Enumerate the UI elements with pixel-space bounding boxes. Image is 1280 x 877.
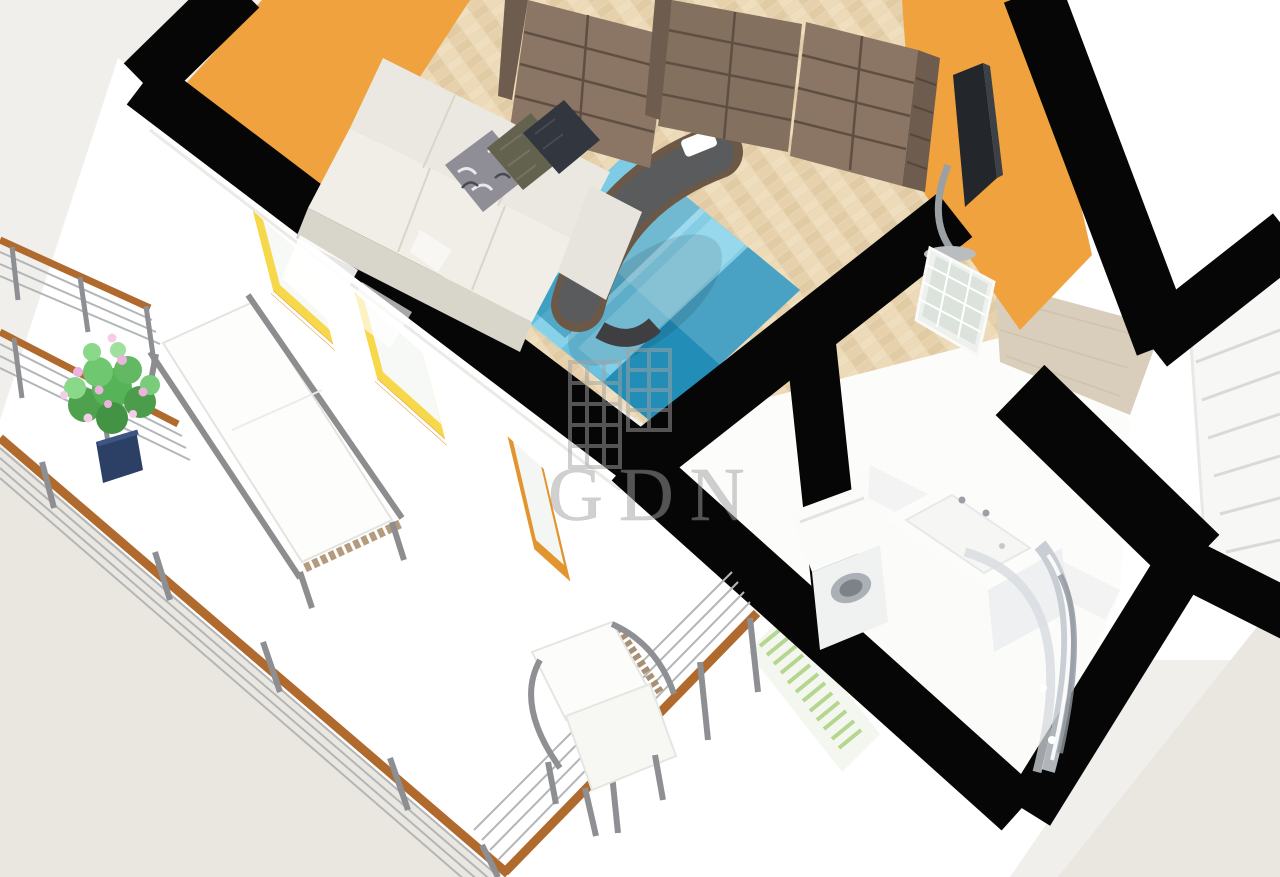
floorplan-canvas: GDN [0,0,1280,877]
floorplan-render: GDN [0,0,1280,877]
watermark-text: GDN [548,453,761,537]
